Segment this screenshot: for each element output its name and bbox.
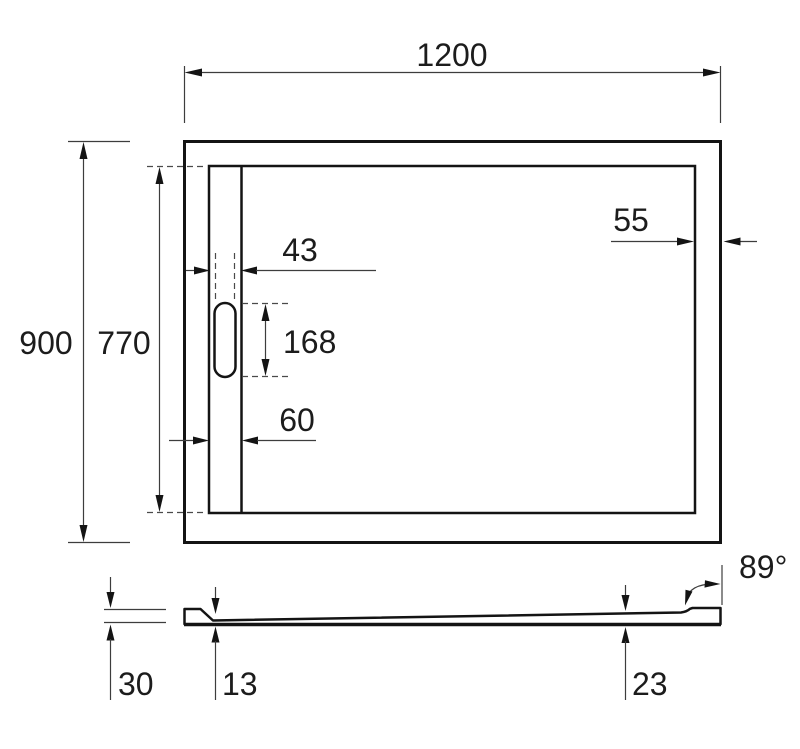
arrowhead-angle-start-icon [685, 590, 693, 606]
arrowhead-angle-end-icon [705, 580, 721, 587]
tray-side-profile [185, 608, 721, 624]
arrowhead-down-icon [107, 592, 115, 608]
arrowhead-down-icon [262, 359, 270, 376]
arrowhead-left-icon [242, 437, 258, 445]
arrowhead-up-icon [212, 627, 220, 643]
arrowhead-up-icon [107, 625, 115, 641]
dim-label-corner-angle: 89° [739, 549, 787, 585]
dimension-total-height: 30 [104, 577, 166, 702]
arrowhead-left-icon [241, 267, 257, 275]
dimension-drain-slot-length: 168 [242, 304, 336, 377]
arrowhead-right-icon [677, 238, 694, 246]
arrowhead-down-icon [622, 595, 630, 611]
dim-label-total-height: 30 [118, 666, 154, 702]
arrowhead-up-icon [622, 627, 630, 643]
dim-label-left-rim: 60 [279, 402, 315, 438]
side-view: 30 13 23 89° [104, 549, 787, 702]
dim-label-right-rim: 55 [613, 202, 649, 238]
arrowhead-up-icon [80, 142, 88, 159]
drawing-svg: 1200 900 770 55 [0, 0, 800, 744]
arrowhead-up-icon [156, 167, 164, 184]
arrowhead-down-icon [156, 495, 164, 512]
dim-label-drain-slot-width: 43 [282, 232, 318, 268]
dimension-outer-width: 1200 [185, 37, 721, 123]
dim-label-outer-width: 1200 [416, 37, 487, 73]
dimension-thickness-drain: 13 [212, 587, 258, 702]
arrowhead-right-icon [194, 267, 210, 275]
drain-slot [215, 303, 236, 377]
dim-label-inner-height: 770 [97, 325, 150, 361]
arrowhead-right-icon [193, 437, 209, 445]
dimension-right-rim: 55 [611, 202, 757, 246]
dim-label-thickness-end: 23 [632, 666, 668, 702]
dimension-drain-slot-width: 43 [186, 232, 376, 275]
arrowhead-right-icon [703, 69, 721, 77]
dimension-thickness-end: 23 [622, 585, 668, 702]
top-view: 1200 900 770 55 [19, 37, 757, 543]
shower-tray-technical-drawing: 1200 900 770 55 [0, 0, 800, 744]
arrowhead-down-icon [80, 525, 88, 542]
dim-label-drain-slot-length: 168 [283, 324, 336, 360]
arrowhead-down-icon [212, 598, 220, 614]
dimension-corner-angle: 89° [685, 549, 787, 606]
dimension-inner-height: 770 [97, 167, 207, 513]
dim-label-thickness-drain: 13 [222, 666, 258, 702]
arrowhead-left-icon [724, 238, 741, 246]
arrowhead-up-icon [262, 304, 270, 321]
arrowhead-left-icon [185, 69, 203, 77]
dim-label-outer-height: 900 [19, 325, 72, 361]
